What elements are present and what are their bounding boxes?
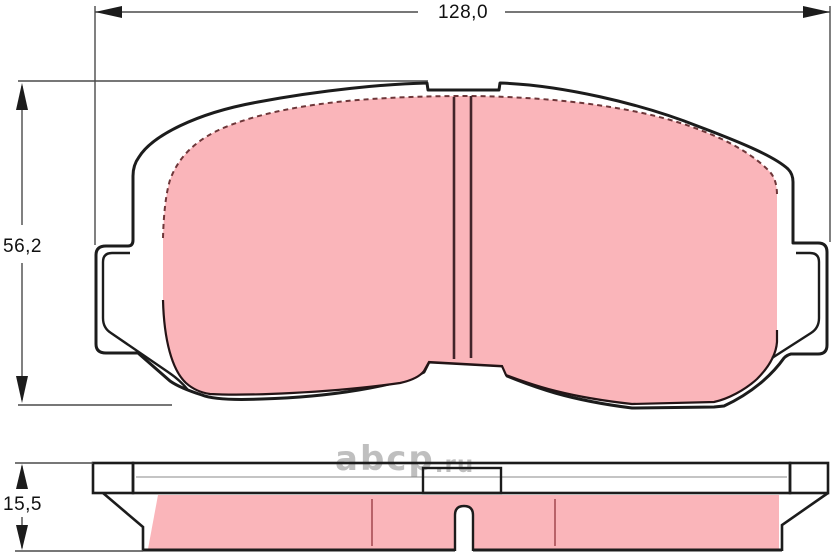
width-dimension-label: 128,0	[420, 2, 506, 24]
screenshot-stage: abcp .ru	[0, 0, 834, 556]
height-dimension-label: 56,2	[3, 236, 47, 258]
edge-centre-notch	[423, 468, 501, 493]
edge-left-chamfer	[103, 493, 143, 551]
front-view	[96, 83, 827, 408]
thickness-arrow-up	[16, 464, 28, 489]
edge-wear-slot	[455, 506, 473, 551]
edge-left-tab	[93, 463, 133, 493]
width-arrow-right	[803, 6, 830, 18]
edge-view	[93, 463, 828, 551]
technical-drawing-svg	[0, 0, 834, 556]
thickness-arrow-down	[16, 525, 28, 550]
thickness-dimension-label: 15,5	[3, 494, 47, 516]
height-arrow-down	[16, 376, 28, 403]
height-arrow-up	[16, 83, 28, 110]
edge-right-chamfer	[782, 493, 828, 551]
edge-right-tab	[790, 463, 828, 493]
width-arrow-left	[95, 6, 122, 18]
